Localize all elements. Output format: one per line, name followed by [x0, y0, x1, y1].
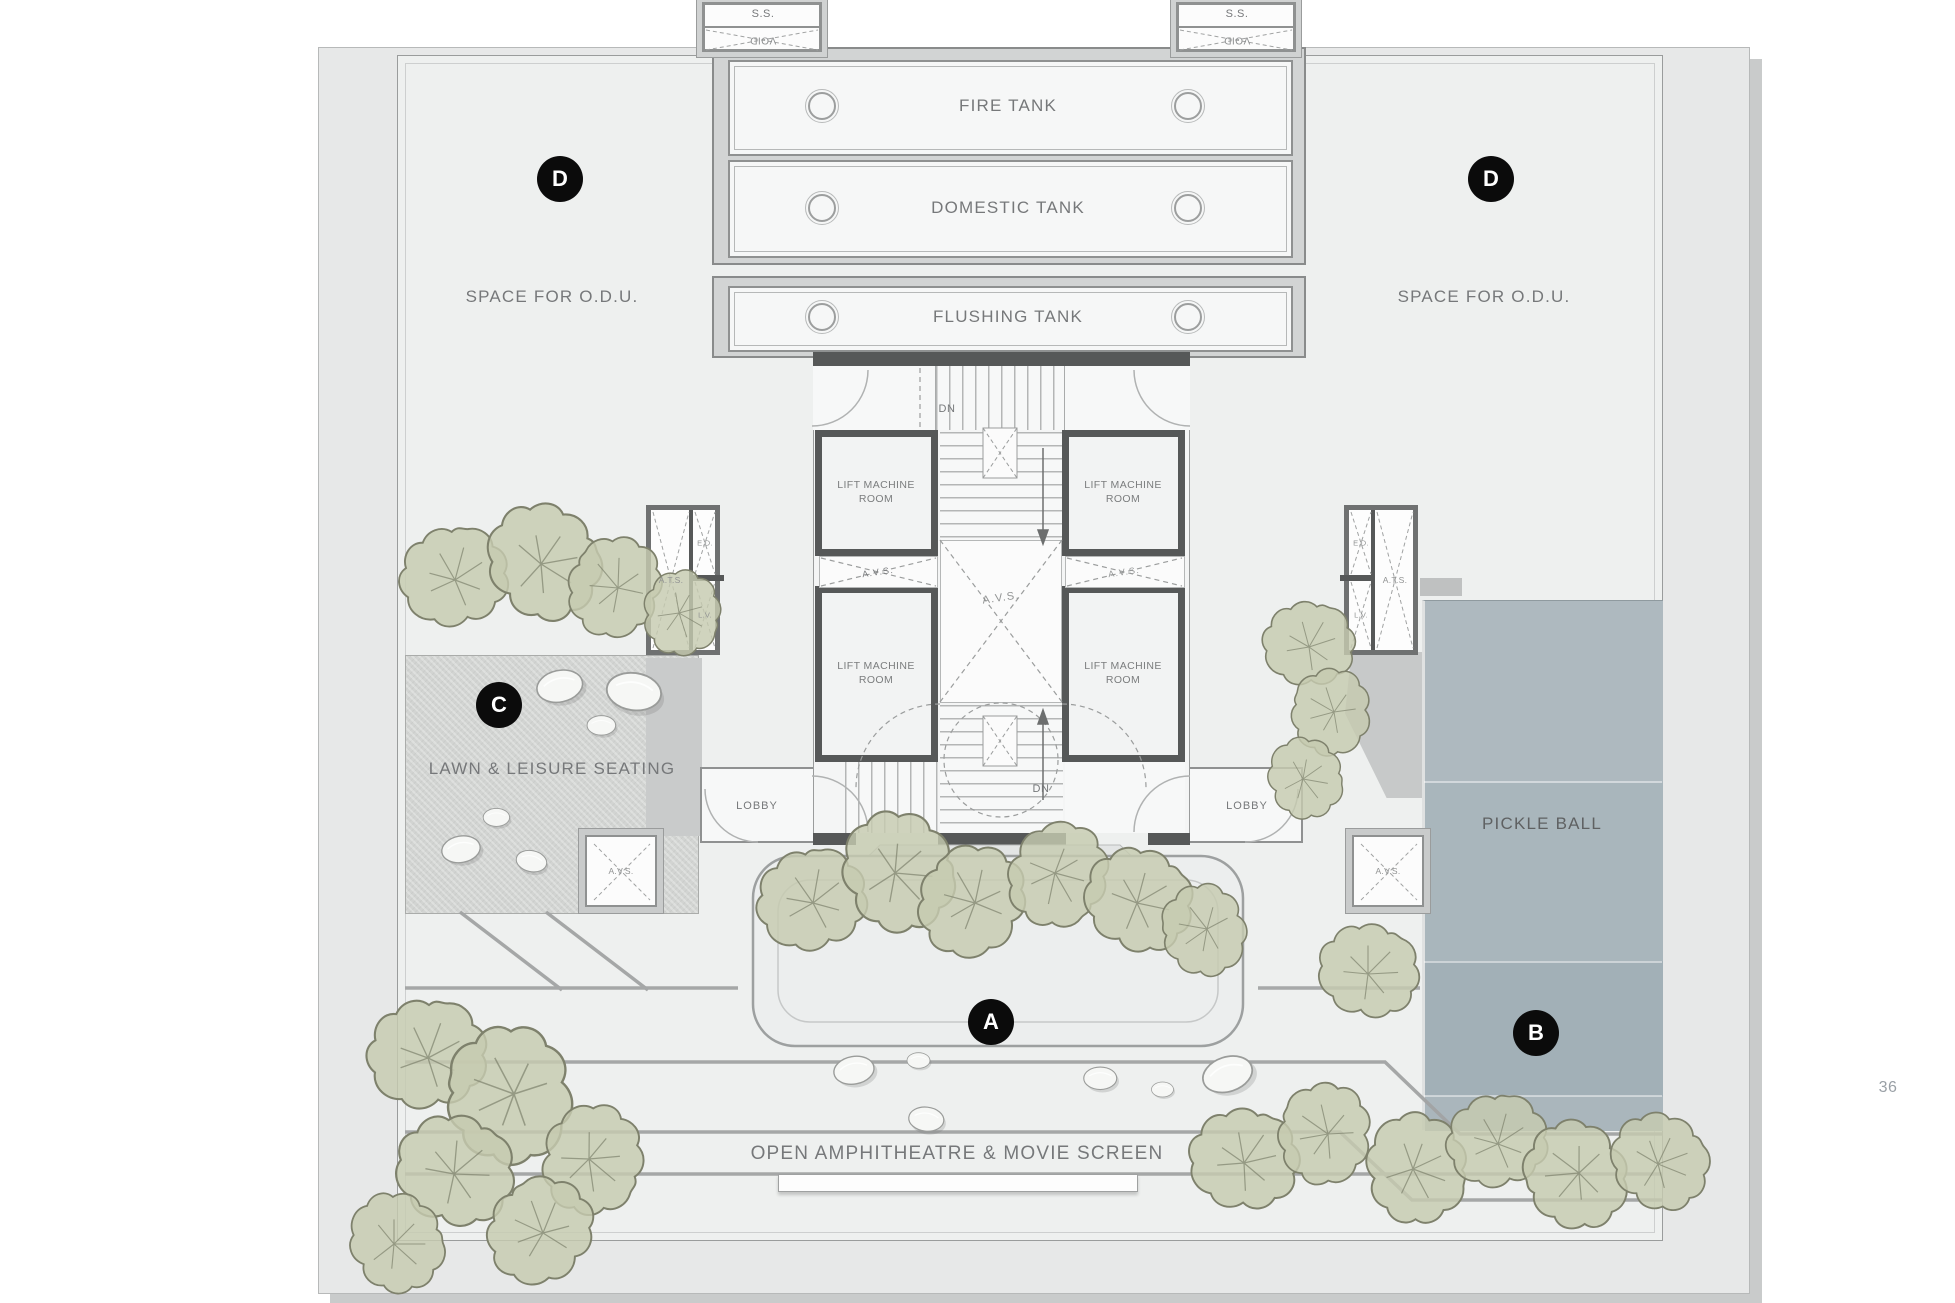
marker-c: C	[476, 682, 522, 728]
core-wall-top	[813, 352, 1190, 366]
lobby-label-left: LOBBY	[736, 800, 778, 812]
paved-strip-left	[646, 658, 702, 836]
void-label-left: VOID	[750, 35, 776, 46]
manhole-icon	[808, 194, 836, 222]
shaft-divider	[691, 575, 724, 581]
manhole-icon	[808, 92, 836, 120]
lv-label-right: L.V.	[1354, 611, 1368, 620]
ed-label-right: E.D.	[1353, 539, 1369, 548]
stair-mid-upper	[940, 432, 1063, 554]
lift-machine-room-label: LIFT MACHINE ROOM	[826, 659, 926, 687]
shaft-divider	[1340, 575, 1373, 581]
stair-top	[935, 366, 1065, 430]
manhole-icon	[1174, 194, 1202, 222]
marker-d-right: D	[1468, 156, 1514, 202]
ats-label-right: A.T.S.	[1383, 575, 1407, 585]
movie-screen	[778, 1174, 1138, 1192]
terrace-floor-plan: S.S. VOID S.S. VOID FIRE TANK DOMESTIC T…	[0, 0, 1955, 1303]
ss-void-divider	[1179, 26, 1293, 28]
lift-machine-room-label: LIFT MACHINE ROOM	[1073, 478, 1173, 506]
ss-void-divider	[705, 26, 819, 28]
flushing-tank-label: FLUSHING TANK	[933, 307, 1083, 327]
avs-shaft-center	[940, 540, 1062, 703]
ats-label-left: A.T.S.	[659, 575, 683, 585]
fire-tank-label: FIRE TANK	[959, 96, 1057, 116]
court-band-bottom	[1425, 1096, 1663, 1131]
dn-label-bottom: DN	[1033, 783, 1050, 795]
stair-side	[845, 762, 938, 833]
marker-b: B	[1513, 1010, 1559, 1056]
core-wall-gap	[856, 833, 938, 845]
avs-label-box-right: A.V.S.	[1375, 866, 1400, 876]
manhole-icon	[1174, 303, 1202, 331]
page-number: 36	[1879, 1079, 1898, 1097]
stair-bottom	[940, 705, 1063, 833]
marker-a: A	[968, 999, 1014, 1045]
odu-label-left: SPACE FOR O.D.U.	[466, 287, 639, 307]
domestic-tank-label: DOMESTIC TANK	[931, 198, 1085, 218]
lv-label-left: L.V.	[698, 611, 712, 620]
paved-band-right	[1420, 578, 1462, 596]
ss-label-right: S.S.	[1226, 8, 1249, 20]
dn-label-top: DN	[939, 403, 956, 415]
marker-d-left: D	[537, 156, 583, 202]
amphitheatre-label: OPEN AMPHITHEATRE & MOVIE SCREEN	[751, 1143, 1164, 1165]
void-label-right: VOID	[1224, 35, 1250, 46]
odu-label-right: SPACE FOR O.D.U.	[1398, 287, 1571, 307]
core-bottom-right-landing	[1065, 762, 1185, 833]
lawn-label: LAWN & LEISURE SEATING	[429, 759, 676, 779]
court-band-top	[1425, 601, 1663, 783]
avs-label-box-left: A.V.S.	[608, 866, 633, 876]
lift-machine-room-label: LIFT MACHINE ROOM	[1073, 659, 1173, 687]
lift-machine-room-label: LIFT MACHINE ROOM	[826, 478, 926, 506]
ed-label-left: E.D.	[697, 539, 713, 548]
pickleball-label: PICKLE BALL	[1482, 814, 1602, 834]
lobby-label-right: LOBBY	[1226, 800, 1268, 812]
core-wall-gap	[1066, 833, 1148, 845]
manhole-icon	[808, 303, 836, 331]
ss-label-left: S.S.	[752, 8, 775, 20]
manhole-icon	[1174, 92, 1202, 120]
